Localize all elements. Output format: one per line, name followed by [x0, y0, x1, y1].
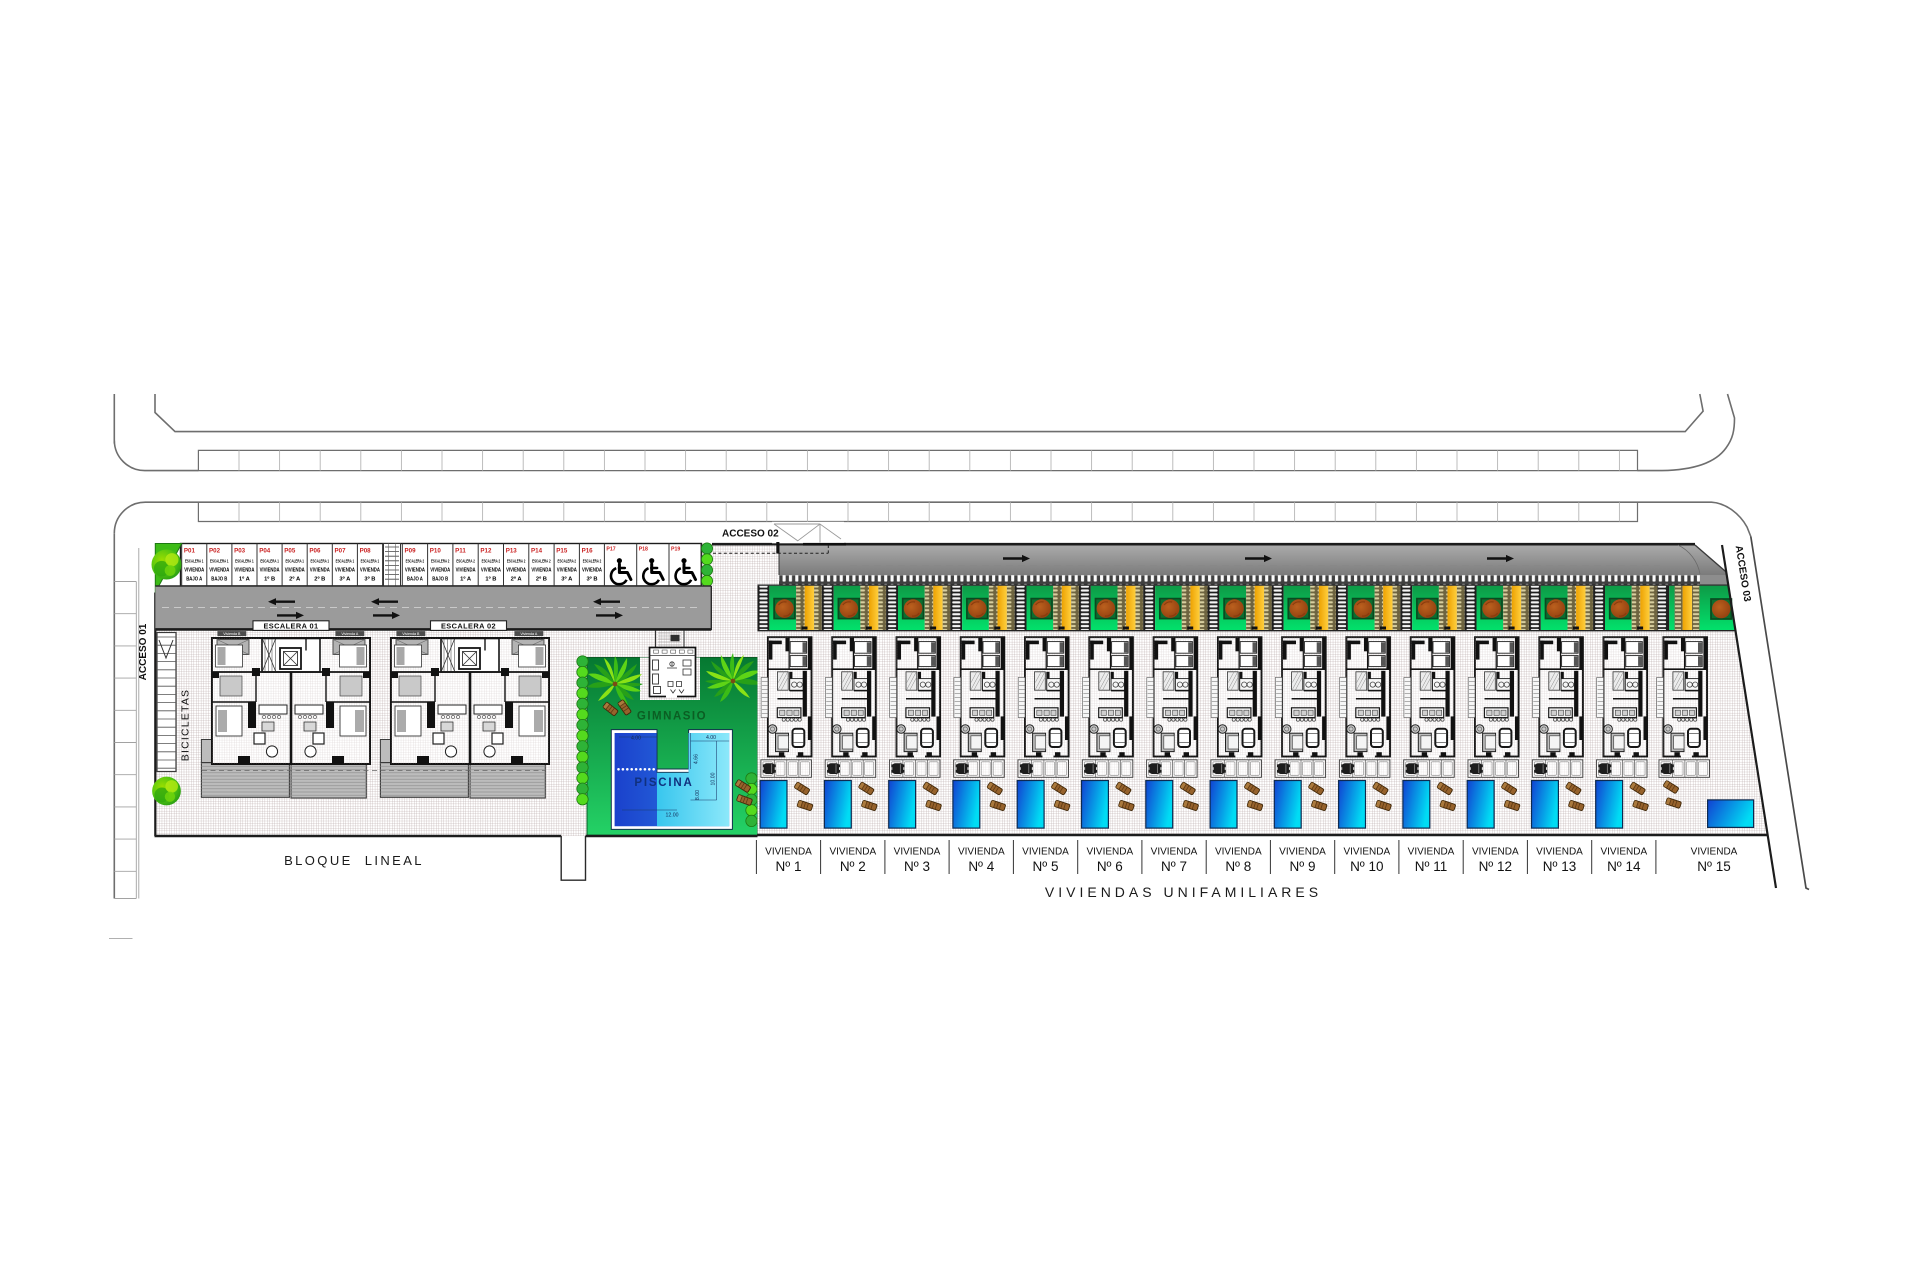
svg-text:ESCALERA 2: ESCALERA 2 [583, 559, 602, 564]
svg-text:3º A: 3º A [339, 577, 350, 583]
svg-text:P09: P09 [405, 548, 417, 555]
svg-text:2º A: 2º A [511, 577, 522, 583]
svg-text:VIVIENDA: VIVIENDA [335, 568, 355, 574]
svg-text:P06: P06 [309, 548, 321, 555]
svg-text:VIVIENDA: VIVIENDA [506, 568, 526, 574]
svg-text:VIVIENDA: VIVIENDA [430, 568, 450, 574]
svg-text:4.00: 4.00 [706, 735, 716, 741]
svg-text:ESCALERA 2: ESCALERA 2 [406, 559, 425, 564]
svg-text:P18: P18 [639, 547, 648, 553]
svg-text:P19: P19 [671, 547, 680, 553]
svg-text:VIVIENDA: VIVIENDA [1408, 847, 1455, 858]
svg-text:4.66: 4.66 [694, 754, 700, 764]
svg-text:ESCALERA 1: ESCALERA 1 [311, 559, 330, 564]
svg-text:8.00: 8.00 [695, 790, 701, 800]
svg-text:ESCALERA 01: ESCALERA 01 [263, 622, 318, 631]
svg-text:P08: P08 [360, 548, 372, 555]
svg-text:P07: P07 [335, 548, 347, 555]
svg-text:ESCALERA 1: ESCALERA 1 [185, 559, 204, 564]
svg-text:VIVIENDA: VIVIENDA [456, 568, 476, 574]
svg-text:Nº 13: Nº 13 [1543, 859, 1576, 874]
svg-text:1º A: 1º A [239, 577, 250, 583]
svg-text:VIVIENDA: VIVIENDA [765, 847, 812, 858]
svg-text:P12: P12 [480, 548, 492, 555]
svg-text:Nº 8: Nº 8 [1225, 859, 1251, 874]
svg-text:PISCINA: PISCINA [634, 777, 693, 789]
svg-text:BAJO B: BAJO B [211, 577, 227, 583]
svg-text:P15: P15 [556, 548, 568, 555]
svg-text:VIVIENDA: VIVIENDA [557, 568, 577, 574]
svg-text:ACCESO 01: ACCESO 01 [138, 623, 149, 680]
svg-text:VIVIENDA: VIVIENDA [360, 568, 380, 574]
svg-text:VIVIENDA: VIVIENDA [958, 847, 1005, 858]
svg-text:P01: P01 [184, 548, 196, 555]
svg-text:1º B: 1º B [485, 577, 496, 583]
svg-text:3º A: 3º A [561, 577, 572, 583]
svg-text:ESCALERA 2: ESCALERA 2 [507, 559, 526, 564]
svg-text:VIVIENDA: VIVIENDA [1279, 847, 1326, 858]
svg-text:P13: P13 [506, 548, 518, 555]
svg-text:Nº 11: Nº 11 [1415, 859, 1447, 874]
svg-text:VIVIENDA: VIVIENDA [184, 568, 204, 574]
svg-text:VIVIENDA: VIVIENDA [1536, 847, 1583, 858]
svg-text:Nº 2: Nº 2 [840, 859, 866, 874]
svg-text:ESCALERA 2: ESCALERA 2 [456, 559, 475, 564]
svg-text:1º A: 1º A [460, 577, 471, 583]
svg-text:Nº 6: Nº 6 [1097, 859, 1123, 874]
svg-text:VIVIENDA: VIVIENDA [1343, 847, 1390, 858]
svg-text:Nº 9: Nº 9 [1290, 859, 1316, 874]
svg-text:VIVIENDA: VIVIENDA [829, 847, 876, 858]
svg-text:3º B: 3º B [364, 577, 375, 583]
svg-text:ESCALERA 1: ESCALERA 1 [260, 559, 279, 564]
svg-text:ESCALERA 1: ESCALERA 1 [336, 559, 355, 564]
svg-text:VIVIENDA: VIVIENDA [405, 568, 425, 574]
svg-text:VIVIENDA: VIVIENDA [894, 847, 941, 858]
svg-text:ESCALERA 1: ESCALERA 1 [361, 559, 380, 564]
svg-text:P05: P05 [284, 548, 296, 555]
svg-text:ESCALERA 2: ESCALERA 2 [482, 559, 501, 564]
svg-text:P10: P10 [430, 548, 442, 555]
svg-text:BLOQUE LINEAL: BLOQUE LINEAL [284, 853, 424, 868]
svg-text:ESCALERA 02: ESCALERA 02 [441, 622, 496, 631]
svg-text:2º B: 2º B [536, 577, 547, 583]
svg-text:Nº 1: Nº 1 [776, 859, 802, 874]
svg-text:Nº 4: Nº 4 [968, 859, 994, 874]
svg-text:VIVIENDA: VIVIENDA [310, 568, 330, 574]
svg-text:P14: P14 [531, 548, 543, 555]
svg-text:Nº 14: Nº 14 [1607, 859, 1641, 874]
svg-text:P03: P03 [234, 548, 246, 555]
svg-text:1º B: 1º B [264, 577, 275, 583]
svg-text:VIVIENDA: VIVIENDA [285, 568, 305, 574]
svg-text:GIMNASIO: GIMNASIO [637, 711, 707, 723]
svg-text:P02: P02 [209, 548, 221, 555]
svg-text:4.00: 4.00 [631, 736, 641, 742]
svg-text:Nº 5: Nº 5 [1033, 859, 1059, 874]
svg-text:ESCALERA 1: ESCALERA 1 [235, 559, 254, 564]
svg-text:2º A: 2º A [289, 577, 300, 583]
svg-text:12.00: 12.00 [666, 813, 679, 819]
svg-text:BAJO B: BAJO B [432, 577, 448, 583]
svg-text:ESCALERA 2: ESCALERA 2 [558, 559, 577, 564]
svg-text:ESCALERA 2: ESCALERA 2 [431, 559, 450, 564]
svg-text:10.00: 10.00 [711, 772, 717, 785]
svg-text:ACCESO 02: ACCESO 02 [722, 529, 779, 540]
svg-text:Nº 7: Nº 7 [1161, 859, 1187, 874]
svg-text:VIVIENDA: VIVIENDA [1086, 847, 1133, 858]
svg-text:P16: P16 [582, 548, 594, 555]
svg-text:VIVIENDA: VIVIENDA [234, 568, 254, 574]
svg-text:BAJO A: BAJO A [407, 577, 423, 583]
svg-text:ESCALERA 1: ESCALERA 1 [285, 559, 304, 564]
svg-text:P17: P17 [606, 547, 615, 553]
svg-text:VIVIENDA: VIVIENDA [260, 568, 280, 574]
svg-text:ESCALERA 2: ESCALERA 2 [532, 559, 551, 564]
svg-text:VIVIENDA: VIVIENDA [1600, 847, 1647, 858]
svg-text:BICICLETAS: BICICLETAS [180, 689, 192, 762]
svg-text:P11: P11 [455, 548, 466, 555]
svg-text:VIVIENDA: VIVIENDA [209, 568, 229, 574]
svg-text:VIVIENDA: VIVIENDA [1151, 847, 1198, 858]
svg-text:2º B: 2º B [314, 577, 325, 583]
svg-text:VIVIENDA: VIVIENDA [1691, 847, 1738, 858]
svg-text:VIVIENDA: VIVIENDA [531, 568, 551, 574]
svg-text:Nº 15: Nº 15 [1697, 859, 1730, 874]
svg-text:Nº 12: Nº 12 [1479, 859, 1512, 874]
svg-text:VIVIENDA: VIVIENDA [481, 568, 501, 574]
svg-text:Nº 3: Nº 3 [904, 859, 930, 874]
svg-text:Nº 10: Nº 10 [1350, 859, 1383, 874]
svg-text:VIVIENDA: VIVIENDA [1472, 847, 1519, 858]
svg-text:ESCALERA 1: ESCALERA 1 [210, 559, 229, 564]
svg-text:VIVIENDA: VIVIENDA [582, 568, 602, 574]
svg-text:P04: P04 [259, 548, 271, 555]
svg-text:VIVIENDA: VIVIENDA [1215, 847, 1262, 858]
svg-text:3º B: 3º B [587, 577, 598, 583]
svg-text:BAJO A: BAJO A [186, 577, 202, 583]
svg-text:VIVIENDAS UNIFAMILIARES: VIVIENDAS UNIFAMILIARES [1045, 884, 1322, 900]
svg-text:VIVIENDA: VIVIENDA [1022, 847, 1069, 858]
